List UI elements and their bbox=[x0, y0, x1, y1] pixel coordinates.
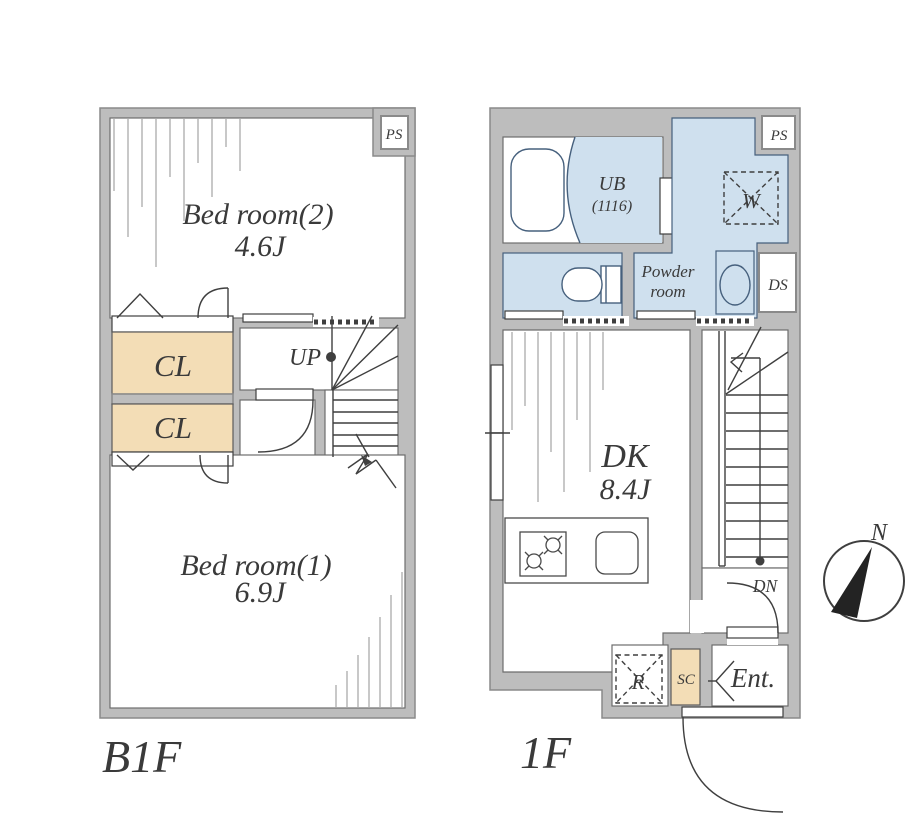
up-start-dot bbox=[326, 352, 336, 362]
ub-size-label: (1116) bbox=[592, 198, 632, 215]
f1-plan: UB (1116) W PS DS Powder room bbox=[485, 108, 800, 812]
door-leaf bbox=[727, 627, 778, 638]
door-leaf bbox=[256, 389, 313, 400]
floorplan-canvas: PS UP bbox=[0, 0, 920, 830]
dk-floor bbox=[503, 330, 690, 672]
fridge-label: R bbox=[631, 670, 645, 694]
toilet-icon bbox=[562, 266, 621, 303]
closet2-label: CL bbox=[154, 410, 192, 445]
ub-label: UB bbox=[599, 173, 626, 195]
kitchen-counter bbox=[505, 518, 648, 583]
washer-label: W bbox=[742, 189, 762, 213]
closet-divider-wall bbox=[112, 394, 233, 404]
compass-icon: N bbox=[824, 520, 904, 621]
compass-needle bbox=[831, 547, 872, 618]
bedroom2-label: Bed room(2) bbox=[182, 198, 333, 231]
front-door-arc bbox=[683, 717, 783, 812]
floorplan-svg: PS UP bbox=[0, 0, 920, 830]
sliding-door bbox=[637, 311, 695, 319]
f1-title: 1F bbox=[520, 727, 572, 778]
up-label: UP bbox=[289, 345, 321, 371]
b1f-ps-label: PS bbox=[385, 127, 403, 143]
dn-start-dot bbox=[756, 557, 765, 566]
entrance-label: Ent. bbox=[730, 663, 775, 693]
powder-room-label-1: Powder bbox=[641, 262, 695, 281]
sliding-door bbox=[243, 314, 313, 322]
ds-label: DS bbox=[767, 277, 788, 294]
front-door-leaf bbox=[682, 707, 783, 717]
hall-opening bbox=[690, 600, 704, 633]
dk-size: 8.4J bbox=[600, 473, 653, 506]
b1f-plan: PS UP bbox=[100, 108, 415, 782]
dk-label: DK bbox=[600, 438, 651, 475]
b1f-vestibule-floor bbox=[240, 400, 315, 460]
bedroom2-size: 4.6J bbox=[235, 230, 288, 263]
bedroom1-size: 6.9J bbox=[235, 576, 288, 609]
shoe-closet-label: SC bbox=[677, 672, 696, 688]
sliding-door bbox=[505, 311, 563, 319]
bathtub-icon bbox=[511, 149, 564, 231]
closet2-door-track bbox=[112, 452, 233, 466]
dn-label: DN bbox=[752, 576, 779, 596]
b1f-title: B1F bbox=[102, 731, 182, 782]
closet1-label: CL bbox=[154, 348, 192, 383]
north-label: N bbox=[870, 520, 889, 546]
f1-ps-label: PS bbox=[770, 128, 788, 144]
powder-room-label-2: room bbox=[650, 282, 685, 301]
door-opening bbox=[197, 318, 228, 328]
